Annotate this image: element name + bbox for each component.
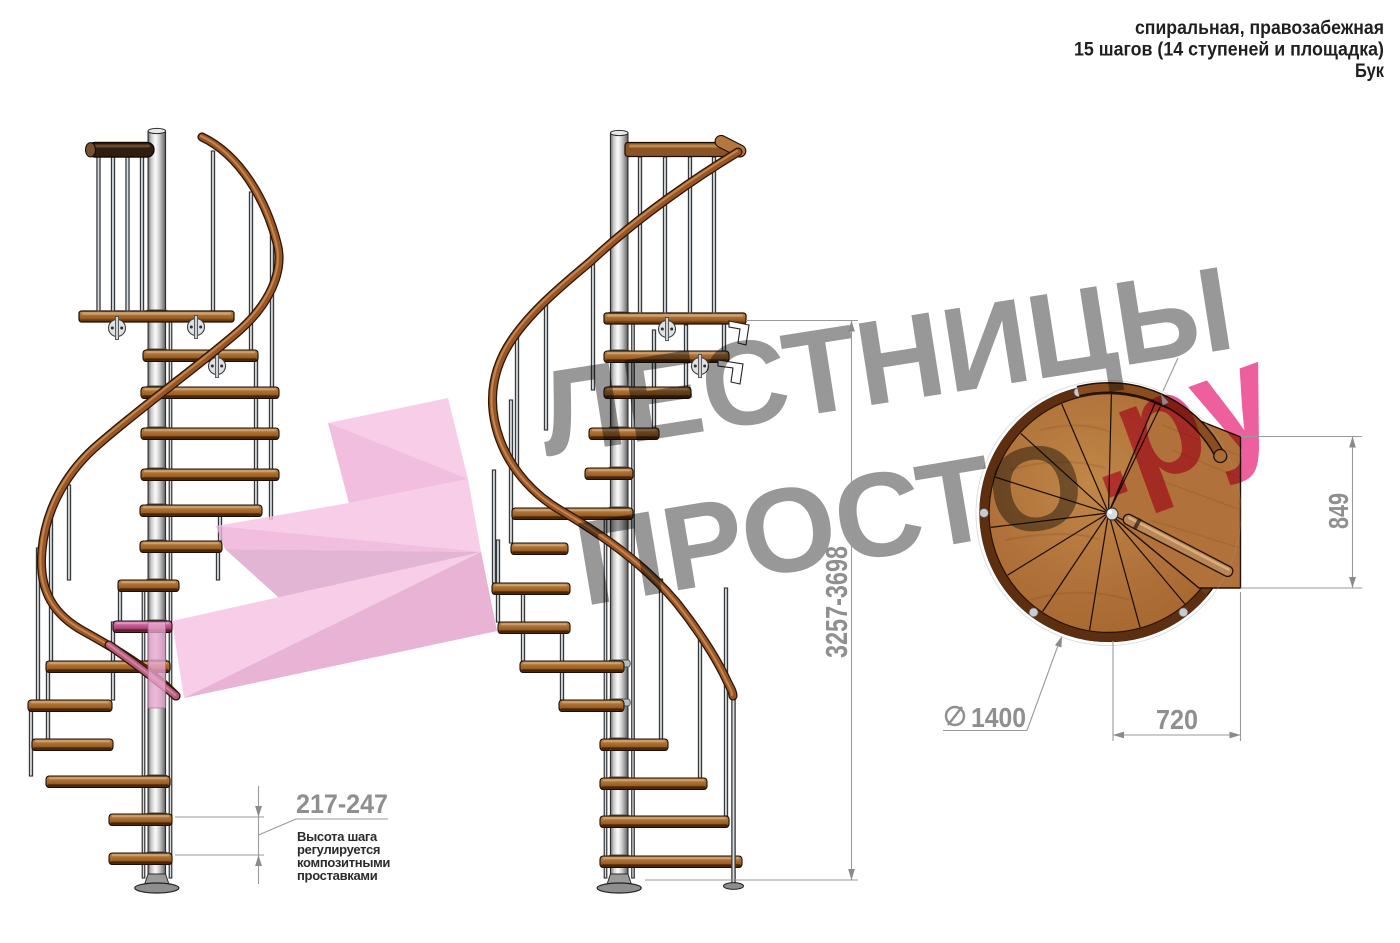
svg-text:15 шагов (14 ступеней и площад: 15 шагов (14 ступеней и площадка): [1074, 40, 1384, 61]
svg-text:Бук: Бук: [1355, 61, 1384, 82]
svg-text:3257-3698: 3257-3698: [819, 546, 854, 658]
svg-text:спиральная, правозабежная: спиральная, правозабежная: [1135, 18, 1384, 39]
svg-text:849: 849: [1323, 493, 1354, 529]
svg-text:217-247: 217-247: [296, 789, 388, 819]
svg-text:720: 720: [1156, 704, 1198, 735]
svg-text:1400: 1400: [971, 702, 1026, 733]
svg-text:проставками: проставками: [297, 868, 378, 883]
